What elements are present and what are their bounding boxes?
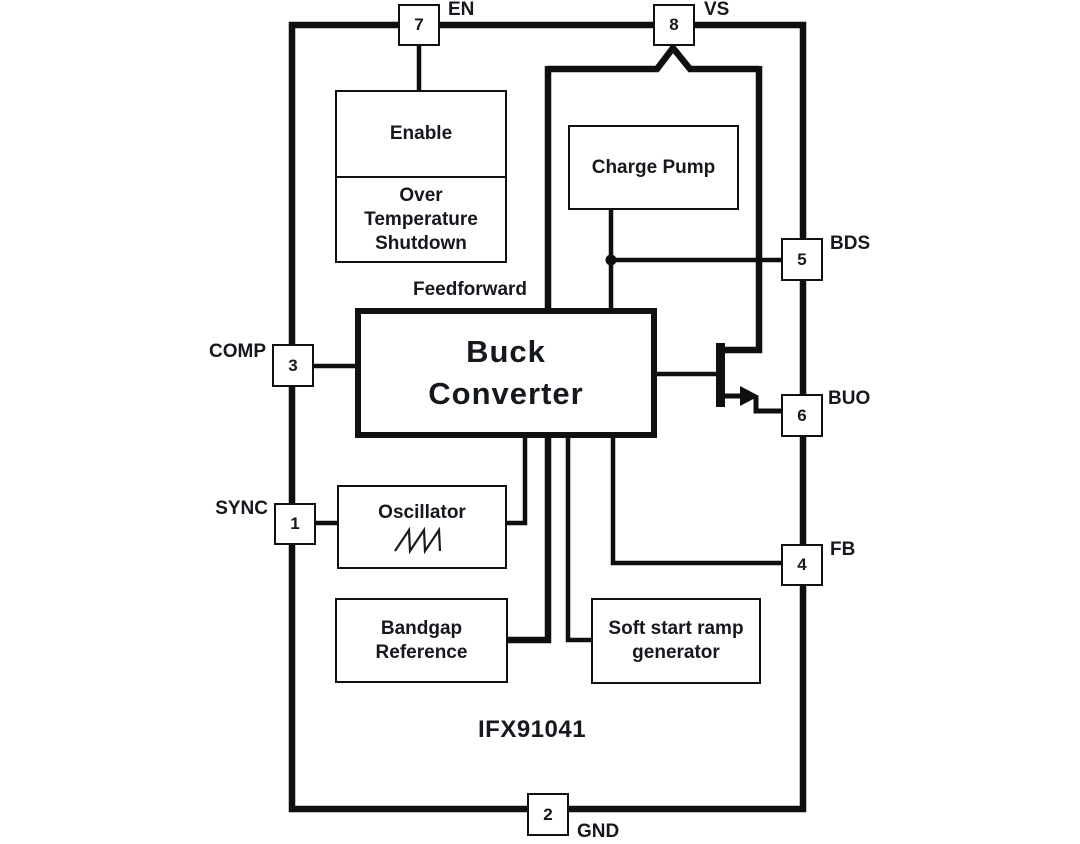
- fb-wire: [613, 436, 781, 563]
- pin-5-bds: 5: [781, 238, 823, 281]
- oscillator-block: Oscillator: [337, 485, 507, 569]
- charge-pump-label: Charge Pump: [592, 156, 716, 180]
- feedforward-label: Feedforward: [413, 280, 527, 300]
- pin-2-gnd: 2: [527, 793, 569, 836]
- pin-1-sync: 1: [274, 503, 316, 545]
- pin-8-vs: 8: [653, 4, 695, 46]
- pin-7-en: 7: [398, 4, 440, 46]
- softstart-to-buck-wire: [568, 436, 592, 640]
- buo-pin-label: BUO: [828, 389, 870, 409]
- bandgap-reference-block: Bandgap Reference: [335, 598, 508, 683]
- sawtooth-waveform-icon: [393, 527, 451, 554]
- block-diagram: Enable Over Temperature Shutdown Charge …: [0, 0, 1080, 844]
- soft-start-block: Soft start ramp generator: [591, 598, 761, 684]
- sync-pin-label: SYNC: [202, 499, 268, 519]
- buck-converter-block: Buck Converter: [355, 308, 657, 438]
- vs-rail-wire: [548, 48, 759, 69]
- charge-pump-block: Charge Pump: [568, 125, 739, 210]
- enable-otp-block: Enable Over Temperature Shutdown: [335, 90, 507, 263]
- oscillator-to-buck-wire: [506, 436, 525, 523]
- bds-pin-label: BDS: [830, 234, 870, 254]
- oscillator-label: Oscillator: [378, 501, 466, 525]
- pin-4-fb: 4: [781, 544, 823, 586]
- gnd-pin-label: GND: [577, 822, 619, 842]
- part-number-label: IFX91041: [478, 720, 586, 740]
- junction-dot: [606, 255, 617, 266]
- vs-pin-label: VS: [704, 0, 729, 20]
- en-pin-label: EN: [448, 0, 474, 20]
- over-temperature-shutdown-label: Over Temperature Shutdown: [337, 176, 505, 261]
- comp-pin-label: COMP: [200, 342, 266, 362]
- enable-block-label: Enable: [337, 92, 505, 176]
- fb-pin-label: FB: [830, 540, 855, 560]
- pin-6-buo: 6: [781, 394, 823, 437]
- pin-3-comp: 3: [272, 344, 314, 387]
